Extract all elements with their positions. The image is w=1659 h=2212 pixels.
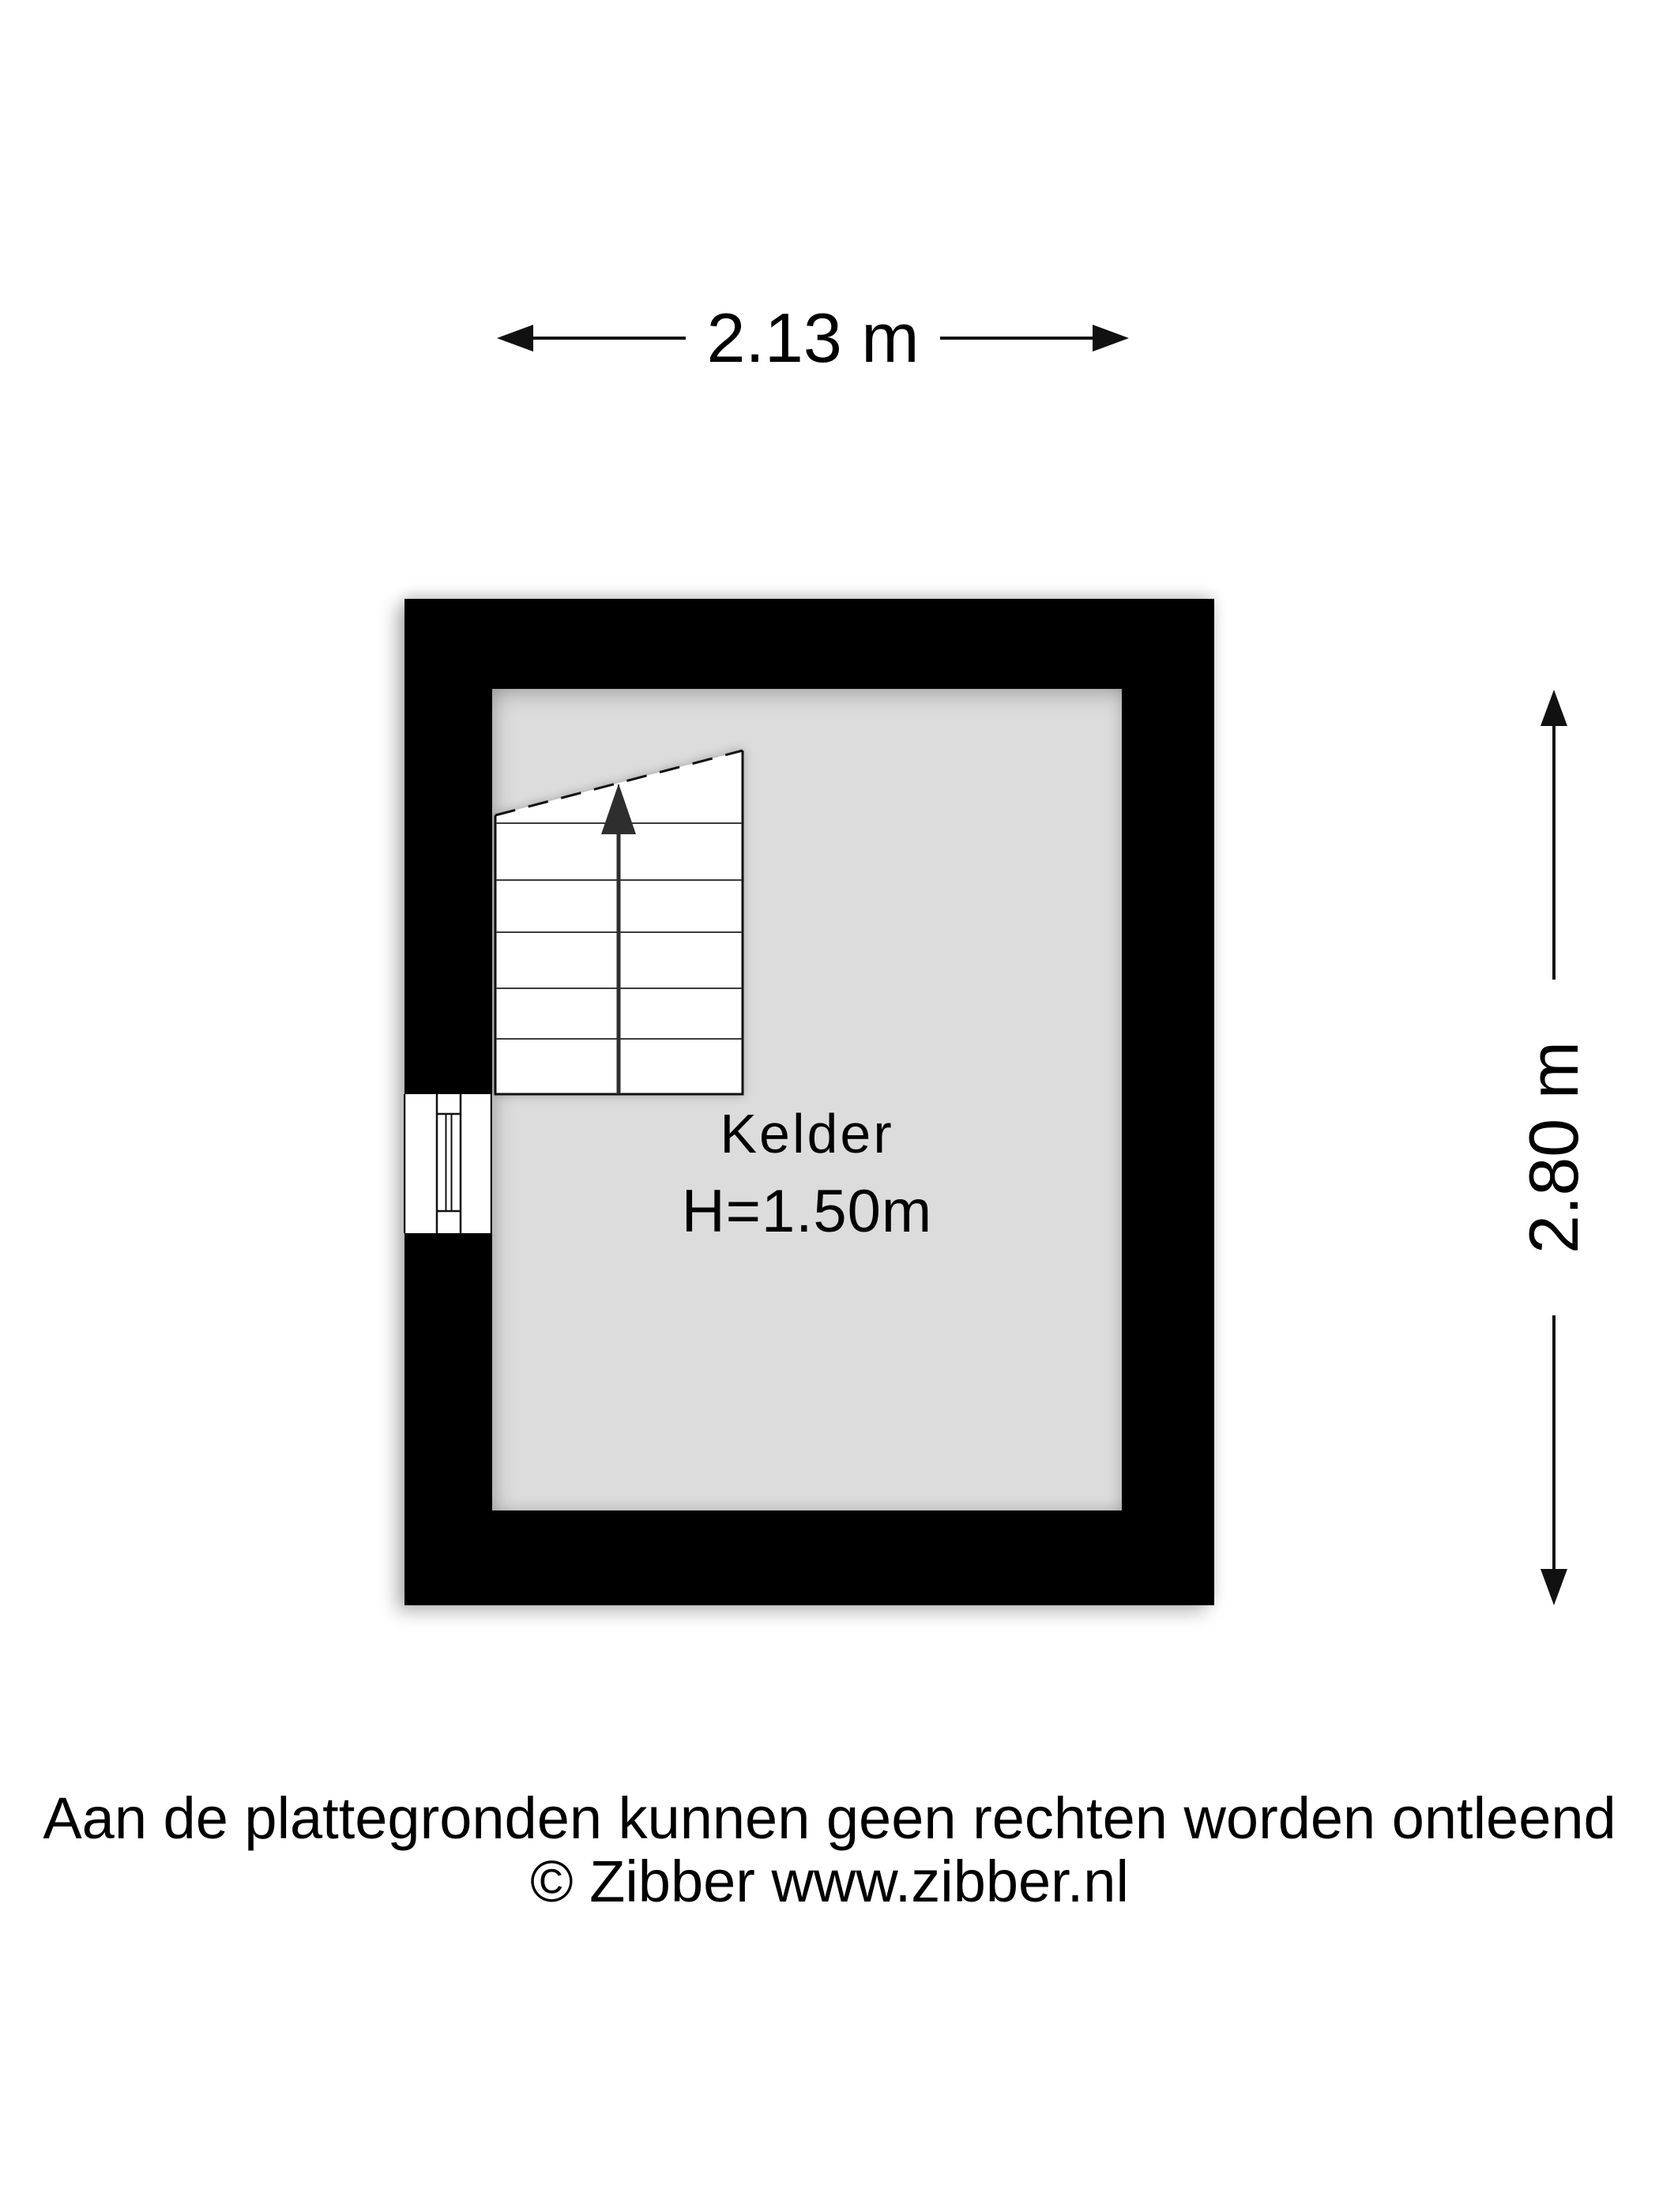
window-opening xyxy=(403,1094,493,1233)
width-dimension: 2.13 m xyxy=(497,291,1129,386)
arrow-down-icon xyxy=(1540,1569,1567,1605)
dimension-line xyxy=(1552,1315,1556,1569)
height-dimension: 2.80 m xyxy=(1518,690,1589,1605)
copyright-text: © Zibber www.zibber.nl xyxy=(0,1850,1659,1913)
window-icon xyxy=(403,1093,493,1235)
staircase xyxy=(493,746,746,1098)
height-dimension-label: 2.80 m xyxy=(1519,1041,1589,1254)
dimension-line xyxy=(1552,726,1556,980)
room-name: Kelder xyxy=(492,1106,1122,1161)
arrow-up-icon xyxy=(1540,690,1567,726)
dimension-line xyxy=(940,337,1093,340)
arrow-right-icon xyxy=(1093,325,1129,352)
room-ceiling-height: H=1.50m xyxy=(492,1182,1122,1242)
floorplan-kelder: Kelder H=1.50m xyxy=(404,599,1214,1605)
width-dimension-label: 2.13 m xyxy=(706,303,919,373)
disclaimer-text: Aan de plattegronden kunnen geen rechten… xyxy=(0,1787,1659,1850)
dimension-line xyxy=(533,337,686,340)
arrow-left-icon xyxy=(497,325,533,352)
room-label: Kelder H=1.50m xyxy=(492,1106,1122,1242)
footer: Aan de plattegronden kunnen geen rechten… xyxy=(0,1787,1659,1913)
